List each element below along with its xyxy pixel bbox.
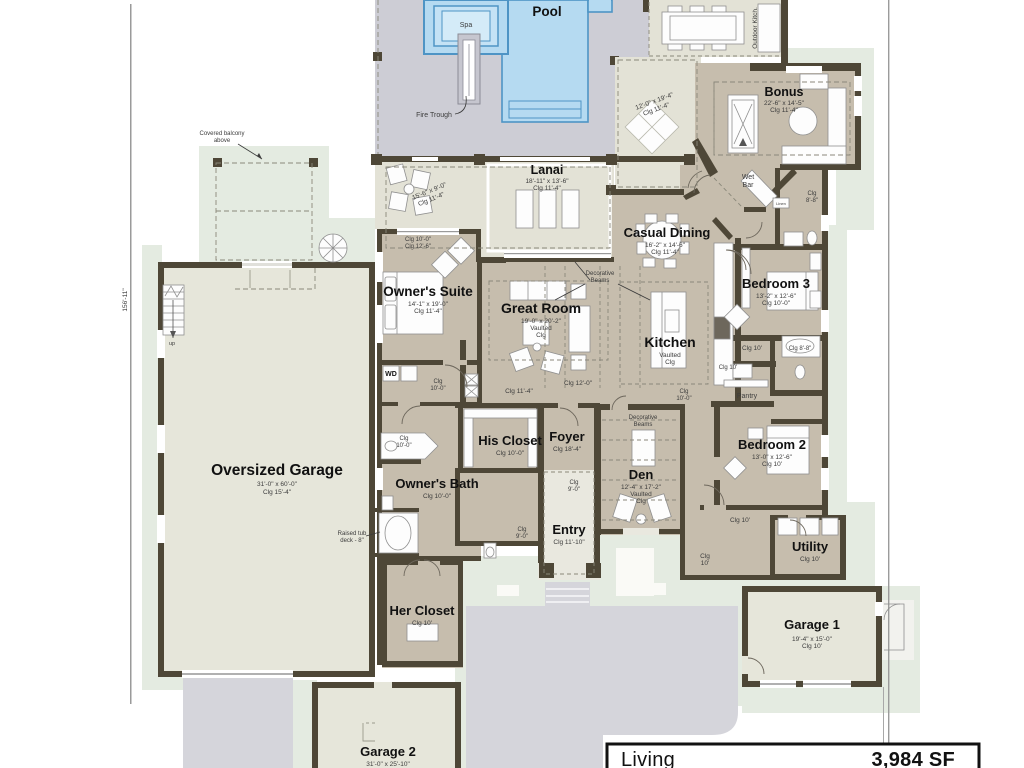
svg-text:Foyer: Foyer [549, 429, 584, 444]
svg-text:Her Closet: Her Closet [389, 603, 455, 618]
svg-text:Garage 1: Garage 1 [784, 617, 840, 632]
svg-text:Clg: Clg [807, 191, 816, 197]
svg-text:Clg 10': Clg 10' [742, 345, 762, 352]
svg-text:Wet: Wet [742, 174, 754, 181]
svg-text:Decorative: Decorative [629, 415, 658, 421]
svg-text:Utility: Utility [792, 539, 829, 554]
svg-text:156'-11": 156'-11" [122, 288, 129, 312]
svg-text:Clg 10'-0": Clg 10'-0" [405, 237, 431, 243]
svg-text:3,984 SF: 3,984 SF [871, 749, 955, 768]
svg-text:Decorative: Decorative [586, 271, 615, 277]
svg-text:WD: WD [385, 371, 397, 378]
svg-text:9'-0": 9'-0" [516, 534, 528, 540]
svg-text:Owner's Suite: Owner's Suite [383, 284, 473, 299]
svg-text:Great Room: Great Room [501, 300, 581, 316]
svg-text:Beams: Beams [591, 278, 610, 284]
svg-text:31'-0" x 60'-0": 31'-0" x 60'-0" [257, 481, 298, 488]
svg-text:Raised tub: Raised tub [338, 531, 367, 537]
svg-text:10'-0": 10'-0" [430, 386, 445, 392]
svg-text:Den: Den [629, 467, 654, 482]
svg-text:Clg 18'-4": Clg 18'-4" [553, 446, 582, 453]
svg-text:9'-0": 9'-0" [568, 487, 580, 493]
svg-text:Clg 11'-4": Clg 11'-4" [533, 185, 561, 192]
svg-text:Clg: Clg [679, 389, 688, 395]
svg-text:Covered balcony: Covered balcony [199, 131, 244, 137]
svg-text:Casual Dining: Casual Dining [624, 225, 711, 240]
svg-text:16'-2" x 14'-6": 16'-2" x 14'-6" [645, 242, 686, 249]
svg-text:10': 10' [701, 560, 709, 567]
svg-text:Kitchen: Kitchen [644, 334, 695, 350]
svg-text:10'-0": 10'-0" [396, 443, 411, 449]
svg-text:Clg 10'-0": Clg 10'-0" [762, 300, 791, 307]
svg-text:14'-1" x 19'-0": 14'-1" x 19'-0" [408, 301, 449, 308]
svg-text:Fire Trough: Fire Trough [416, 112, 452, 119]
svg-text:Clg 11'-4": Clg 11'-4" [651, 249, 679, 256]
svg-text:Clg: Clg [569, 480, 578, 486]
svg-text:Vaulted: Vaulted [530, 325, 552, 332]
svg-text:Lanai: Lanai [531, 163, 564, 177]
svg-text:19'-4" x 15'-0": 19'-4" x 15'-0" [792, 636, 833, 643]
svg-text:Bedroom 3: Bedroom 3 [742, 276, 810, 291]
svg-text:Oversized Garage: Oversized Garage [211, 462, 343, 479]
svg-text:18'-11" x 13'-6": 18'-11" x 13'-6" [525, 178, 569, 185]
svg-text:10'-0": 10'-0" [676, 396, 691, 402]
svg-text:Clg: Clg [636, 498, 646, 505]
svg-text:Beams: Beams [634, 422, 653, 428]
svg-text:Owner's Bath: Owner's Bath [395, 476, 478, 491]
svg-text:Living: Living [621, 749, 675, 768]
svg-text:Outdoor Kitch.: Outdoor Kitch. [752, 7, 759, 49]
svg-text:13'-0" x 12'-6": 13'-0" x 12'-6" [752, 454, 793, 461]
svg-text:Entry: Entry [552, 522, 586, 537]
svg-text:Clg 10'-0": Clg 10'-0" [423, 493, 452, 500]
svg-text:Vaulted: Vaulted [659, 352, 681, 359]
svg-text:Clg 8'-8": Clg 8'-8" [789, 346, 812, 352]
svg-text:Clg 10'-0": Clg 10'-0" [496, 450, 525, 457]
svg-text:Clg: Clg [433, 379, 442, 385]
svg-text:Clg: Clg [517, 527, 526, 533]
svg-text:Clg 10': Clg 10' [719, 365, 738, 371]
svg-text:Clg 15'-4": Clg 15'-4" [263, 489, 292, 496]
svg-text:Clg 11'-4": Clg 11'-4" [770, 107, 798, 114]
svg-text:Clg 11'-4": Clg 11'-4" [414, 308, 442, 315]
svg-text:Spa: Spa [460, 22, 473, 29]
svg-text:Linen: Linen [776, 201, 786, 206]
svg-text:Vaulted: Vaulted [630, 491, 652, 498]
svg-text:8'-8": 8'-8" [806, 198, 818, 204]
svg-text:Pool: Pool [532, 4, 561, 19]
svg-text:above: above [214, 138, 231, 144]
svg-text:Clg 10': Clg 10' [802, 643, 822, 650]
svg-text:Clg: Clg [536, 332, 546, 339]
svg-text:Clg 12'-0": Clg 12'-0" [564, 380, 593, 387]
svg-text:Clg 10': Clg 10' [730, 517, 750, 524]
svg-text:12'-4" x 17'-2": 12'-4" x 17'-2" [621, 484, 662, 491]
svg-text:Bedroom 2: Bedroom 2 [738, 437, 806, 452]
svg-text:up: up [169, 341, 175, 347]
svg-text:Clg 12'-6": Clg 12'-6" [405, 244, 431, 250]
svg-text:Garage 2: Garage 2 [360, 744, 416, 759]
svg-text:13'-2" x 12'-6": 13'-2" x 12'-6" [756, 293, 797, 300]
svg-text:Clg 10': Clg 10' [762, 461, 782, 468]
svg-text:31'-0" x 25'-10": 31'-0" x 25'-10" [366, 761, 410, 768]
svg-text:Pantry: Pantry [737, 393, 758, 400]
svg-text:Clg: Clg [399, 436, 408, 442]
svg-text:Clg 11'-4": Clg 11'-4" [505, 388, 533, 395]
svg-text:Bar: Bar [743, 182, 755, 189]
svg-text:Clg 10': Clg 10' [412, 620, 432, 627]
svg-text:22'-6" x 14'-5": 22'-6" x 14'-5" [764, 100, 805, 107]
svg-text:Bonus: Bonus [765, 85, 804, 99]
svg-text:Clg: Clg [700, 553, 710, 560]
svg-text:deck - 8": deck - 8" [340, 538, 363, 544]
svg-text:Clg 11'-10": Clg 11'-10" [553, 539, 585, 546]
svg-text:Clg: Clg [665, 359, 675, 366]
svg-text:Clg 10': Clg 10' [800, 556, 820, 563]
svg-text:19'-0" x 20'-2": 19'-0" x 20'-2" [521, 318, 562, 325]
svg-text:His Closet: His Closet [478, 433, 542, 448]
